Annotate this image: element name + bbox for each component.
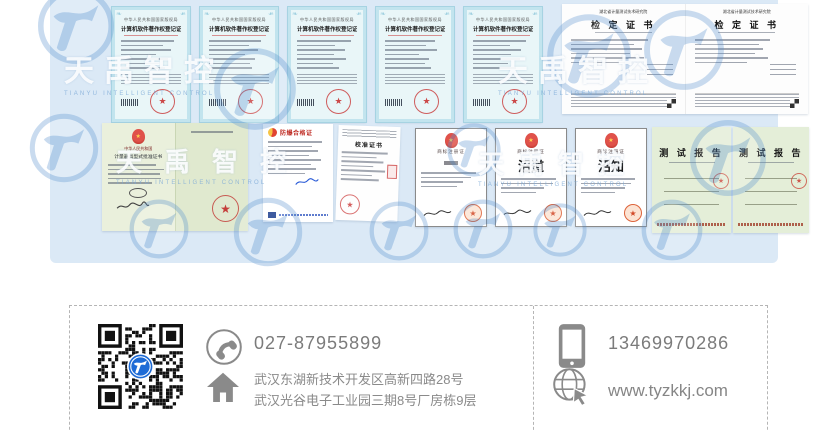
signature-icon — [423, 208, 453, 219]
copyright-certificate: 中华人民共和国国家版权局 计算机软件著作权登记证书 — [112, 7, 190, 122]
red-seal-icon — [624, 204, 642, 222]
barcode-icon — [121, 99, 138, 106]
cert-text-lines — [268, 141, 328, 174]
address-line-2: 武汉光谷电子工业园三期8号厂房栋9层 — [254, 390, 476, 411]
phone-number: 027-87955899 — [254, 333, 382, 354]
trademark-certificate: 商标注册证 沼知 — [575, 128, 647, 227]
verification-certificate: 湖北省计量测试技术研究院 检 定 证 书 — [685, 4, 809, 114]
cert-text-lines — [581, 178, 641, 193]
copyright-cert-row: 中华人民共和国国家版权局 计算机软件著作权登记证书 中华人民共和国国家版权局 计… — [112, 7, 542, 122]
type-approval-certificate: 中华人民共和国 计量器具型式批准证书 — [102, 123, 248, 231]
blue-signature-icon — [294, 177, 320, 187]
cert-table — [571, 93, 676, 108]
cert-footer — [268, 212, 328, 218]
cert-authority: 中华人民共和国国家版权局 — [473, 17, 533, 23]
dashed-divider — [533, 306, 534, 431]
cert-table — [695, 93, 800, 108]
booklet-left-page: 中华人民共和国 计量器具型式批准证书 — [102, 123, 176, 231]
copyright-certificate: 中华人民共和国国家版权局 计算机软件著作权登记证书 — [376, 7, 454, 122]
red-seal-icon — [414, 89, 439, 114]
cert-text-lines — [297, 40, 357, 69]
red-seal-icon — [464, 204, 482, 222]
certificates-panel: 中华人民共和国国家版权局 计算机软件著作权登记证书 中华人民共和国国家版权局 计… — [50, 0, 778, 263]
cert-footer — [738, 223, 804, 226]
cert-paragraph — [121, 74, 181, 85]
national-emblem-icon — [445, 133, 458, 148]
divider — [212, 35, 266, 36]
cert-text-lines — [501, 178, 561, 193]
website-link[interactable]: www.tyzkkj.com — [608, 381, 728, 401]
form-field — [745, 173, 797, 179]
cert-title: 测 试 报 告 — [739, 146, 803, 159]
barcode-icon — [385, 99, 402, 106]
copyright-certificate: 中华人民共和国国家版权局 计算机软件著作权登记证书 — [464, 7, 542, 122]
barcode-icon — [667, 99, 676, 108]
red-seal-icon — [713, 173, 729, 189]
signature-icon — [583, 208, 613, 219]
cert-text-lines — [209, 40, 269, 69]
barcode-icon — [790, 99, 799, 108]
trademark-mark: 沼知 — [581, 158, 641, 175]
footer-line — [279, 214, 328, 216]
divider — [300, 35, 354, 36]
mobile-number: 13469970286 — [608, 333, 729, 354]
trademark-certificate: 商标注册证 — [415, 128, 487, 227]
cert-text-lines — [421, 172, 481, 187]
contact-section: 027-87955899 武汉东湖新技术开发区高新四路28号 武汉光谷电子工业园… — [69, 305, 768, 431]
verification-certificate: 湖北省计量测试技术研究院 检 定 证 书 — [562, 4, 685, 114]
cert-title: 商标注册证 — [501, 149, 561, 155]
cert-subtitle — [718, 32, 775, 35]
divider — [476, 35, 530, 36]
form-field — [664, 186, 719, 192]
explosion-proof-certificate: 防爆合格证 — [263, 124, 333, 222]
cert-authority: 中华人民共和国国家版权局 — [121, 17, 181, 23]
red-seal-icon — [502, 89, 527, 114]
cert-text-lines — [473, 40, 533, 69]
cert-footer — [209, 88, 269, 114]
national-emblem-icon — [605, 133, 618, 148]
cert-authority: 中华人民共和国国家版权局 — [297, 17, 357, 23]
address: 武汉东湖新技术开发区高新四路28号 武汉光谷电子工业园三期8号厂房栋9层 — [254, 369, 476, 411]
booklet-right-page — [176, 123, 249, 231]
cert-title: 防爆合格证 — [280, 128, 313, 137]
phone-icon — [204, 327, 244, 367]
cert-institute: 湖北省计量测试技术研究院 — [695, 9, 800, 15]
cert-paragraph — [209, 74, 269, 85]
national-emblem-icon — [525, 133, 538, 148]
cert-title: 检 定 证 书 — [571, 18, 676, 31]
signature-icon — [503, 208, 533, 219]
test-report: 测 试 报 告 — [652, 127, 731, 233]
cert-subtitle — [595, 32, 652, 35]
cert-text-lines — [385, 40, 445, 69]
cert-footer — [473, 88, 533, 114]
cert-header: 防爆合格证 — [268, 128, 328, 137]
form-field — [664, 199, 719, 205]
mobile-icon — [557, 323, 587, 369]
trademark-mark — [444, 161, 458, 165]
form-field — [664, 173, 719, 179]
verification-cert-pair: 湖北省计量测试技术研究院 检 定 证 书 湖北省计量测试技术研究院 检 定 证 … — [562, 4, 808, 114]
cert-paragraph — [473, 74, 533, 85]
cert-title: 测 试 报 告 — [658, 146, 725, 159]
globe-icon — [551, 366, 591, 406]
cert-title: 计算机软件著作权登记证书 — [473, 25, 533, 33]
form-field — [745, 186, 797, 192]
calibration-certificate: 校准证书 — [335, 125, 400, 222]
cert-text-lines — [108, 164, 169, 184]
red-seal-icon — [326, 89, 351, 114]
cert-text-lines — [121, 40, 181, 69]
cert-header — [342, 129, 396, 139]
agency-logo-icon — [268, 212, 276, 218]
red-seal-icon — [238, 89, 263, 114]
cert-footer — [657, 223, 726, 226]
cert-subtitle — [748, 162, 794, 165]
cert-paragraph — [297, 74, 357, 85]
page: 中华人民共和国国家版权局 计算机软件著作权登记证书 中华人民共和国国家版权局 计… — [0, 0, 840, 431]
signature-icon — [116, 200, 150, 212]
cert-title: 计算机软件著作权登记证书 — [209, 25, 269, 33]
cert-title: 计算机软件著作权登记证书 — [385, 25, 445, 33]
red-seal-icon — [791, 173, 807, 189]
cert-title: 检 定 证 书 — [695, 18, 800, 31]
signature-block — [770, 60, 796, 79]
form-field — [745, 199, 797, 205]
red-star-seal-icon — [212, 195, 239, 222]
trademark-certificate: 商标注册证 沼道 — [495, 128, 567, 227]
cert-title: 计量器具型式批准证书 — [108, 153, 169, 160]
cert-institute: 湖北省计量测试技术研究院 — [571, 9, 676, 15]
trademark-mark: 沼道 — [501, 158, 561, 175]
red-seal-icon — [150, 89, 175, 114]
cert-footer — [385, 88, 445, 114]
qr-code — [98, 324, 183, 409]
cert-title: 校准证书 — [342, 139, 396, 150]
copyright-certificate: 中华人民共和国国家版权局 计算机软件著作权登记证书 — [200, 7, 278, 122]
divider — [124, 35, 178, 36]
approval-mark-icon — [129, 188, 147, 198]
signature-block — [647, 60, 673, 79]
cert-country: 中华人民共和国 — [108, 146, 169, 152]
cert-footer — [297, 88, 357, 114]
barcode-icon — [297, 99, 314, 106]
divider — [388, 35, 442, 36]
ex-mark-icon — [268, 128, 277, 137]
cert-footer — [121, 88, 181, 114]
home-icon — [205, 370, 241, 404]
national-emblem-icon — [132, 129, 145, 144]
tianyu-logo-icon — [127, 353, 154, 380]
cert-title: 计算机软件著作权登记证书 — [121, 25, 181, 33]
red-seal-icon — [544, 204, 562, 222]
cert-title: 商标注册证 — [421, 149, 481, 155]
cert-title: 计算机软件著作权登记证书 — [297, 25, 357, 33]
cert-title: 商标注册证 — [581, 149, 641, 155]
cert-subtitle — [669, 162, 715, 165]
cert-authority: 中华人民共和国国家版权局 — [209, 17, 269, 23]
red-seal-icon — [340, 194, 361, 215]
cert-authority: 中华人民共和国国家版权局 — [385, 17, 445, 23]
cert-paragraph — [385, 74, 445, 85]
red-stamp-icon — [387, 165, 397, 179]
barcode-icon — [473, 99, 490, 106]
test-report: 测 试 报 告 — [733, 127, 809, 233]
barcode-icon — [209, 99, 226, 106]
address-line-1: 武汉东湖新技术开发区高新四路28号 — [254, 369, 476, 390]
copyright-certificate: 中华人民共和国国家版权局 计算机软件著作权登记证书 — [288, 7, 366, 122]
